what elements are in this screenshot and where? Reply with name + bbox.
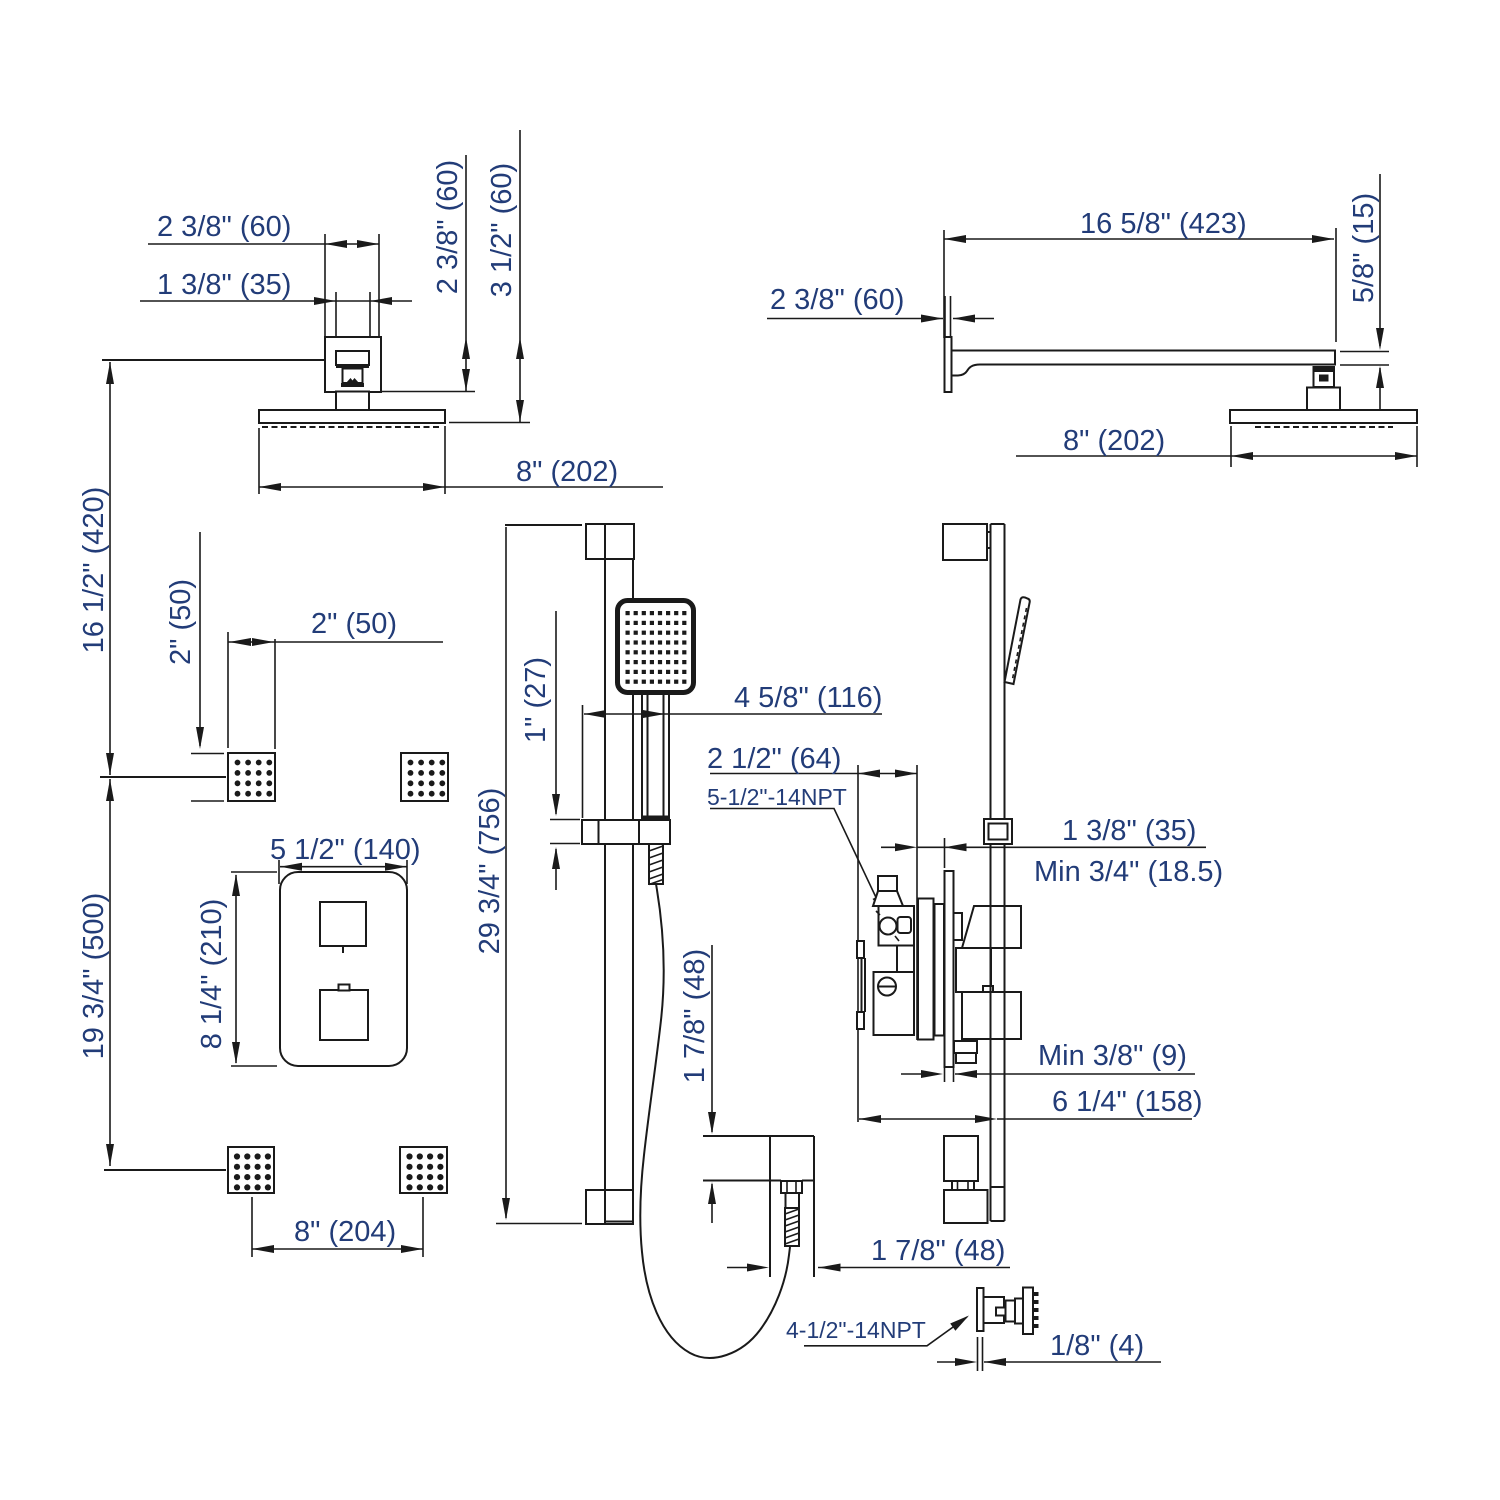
svg-text:19 3/4" (500): 19 3/4" (500) bbox=[78, 893, 110, 1060]
svg-text:2 1/2" (64): 2 1/2" (64) bbox=[707, 743, 841, 775]
svg-text:8 1/4" (210): 8 1/4" (210) bbox=[196, 899, 228, 1050]
svg-text:4-1/2"-14NPT: 4-1/2"-14NPT bbox=[786, 1317, 926, 1343]
svg-text:8" (202): 8" (202) bbox=[1063, 425, 1165, 457]
svg-text:5-1/2"-14NPT: 5-1/2"-14NPT bbox=[707, 784, 847, 810]
svg-text:1 3/8" (35): 1 3/8" (35) bbox=[157, 269, 291, 301]
svg-text:3 1/2" (60): 3 1/2" (60) bbox=[486, 163, 518, 297]
svg-text:2" (50): 2" (50) bbox=[311, 608, 397, 640]
svg-text:5 1/2" (140): 5 1/2" (140) bbox=[270, 834, 421, 866]
svg-text:4 5/8" (116): 4 5/8" (116) bbox=[734, 682, 882, 714]
svg-text:2" (50): 2" (50) bbox=[165, 579, 197, 665]
svg-text:Min 3/4" (18.5): Min 3/4" (18.5) bbox=[1034, 856, 1223, 888]
svg-text:16 5/8" (423): 16 5/8" (423) bbox=[1080, 208, 1247, 240]
svg-text:1" (27): 1" (27) bbox=[520, 657, 552, 743]
svg-text:2 3/8" (60): 2 3/8" (60) bbox=[157, 211, 291, 243]
svg-text:2 3/8" (60): 2 3/8" (60) bbox=[432, 160, 464, 294]
svg-text:5/8" (15): 5/8" (15) bbox=[1348, 193, 1380, 303]
svg-text:8" (202): 8" (202) bbox=[516, 456, 618, 488]
svg-text:1 3/8" (35): 1 3/8" (35) bbox=[1062, 815, 1196, 847]
svg-text:1/8" (4): 1/8" (4) bbox=[1050, 1330, 1144, 1362]
svg-text:1 7/8" (48): 1 7/8" (48) bbox=[871, 1235, 1005, 1267]
svg-text:29 3/4" (756): 29 3/4" (756) bbox=[474, 788, 506, 955]
svg-text:16 1/2" (420): 16 1/2" (420) bbox=[78, 487, 110, 654]
svg-text:8" (204): 8" (204) bbox=[294, 1216, 396, 1248]
svg-text:Min 3/8" (9): Min 3/8" (9) bbox=[1038, 1040, 1187, 1072]
svg-text:6 1/4" (158): 6 1/4" (158) bbox=[1052, 1086, 1203, 1118]
svg-text:2 3/8" (60): 2 3/8" (60) bbox=[770, 284, 904, 316]
svg-text:1 7/8" (48): 1 7/8" (48) bbox=[679, 949, 711, 1083]
